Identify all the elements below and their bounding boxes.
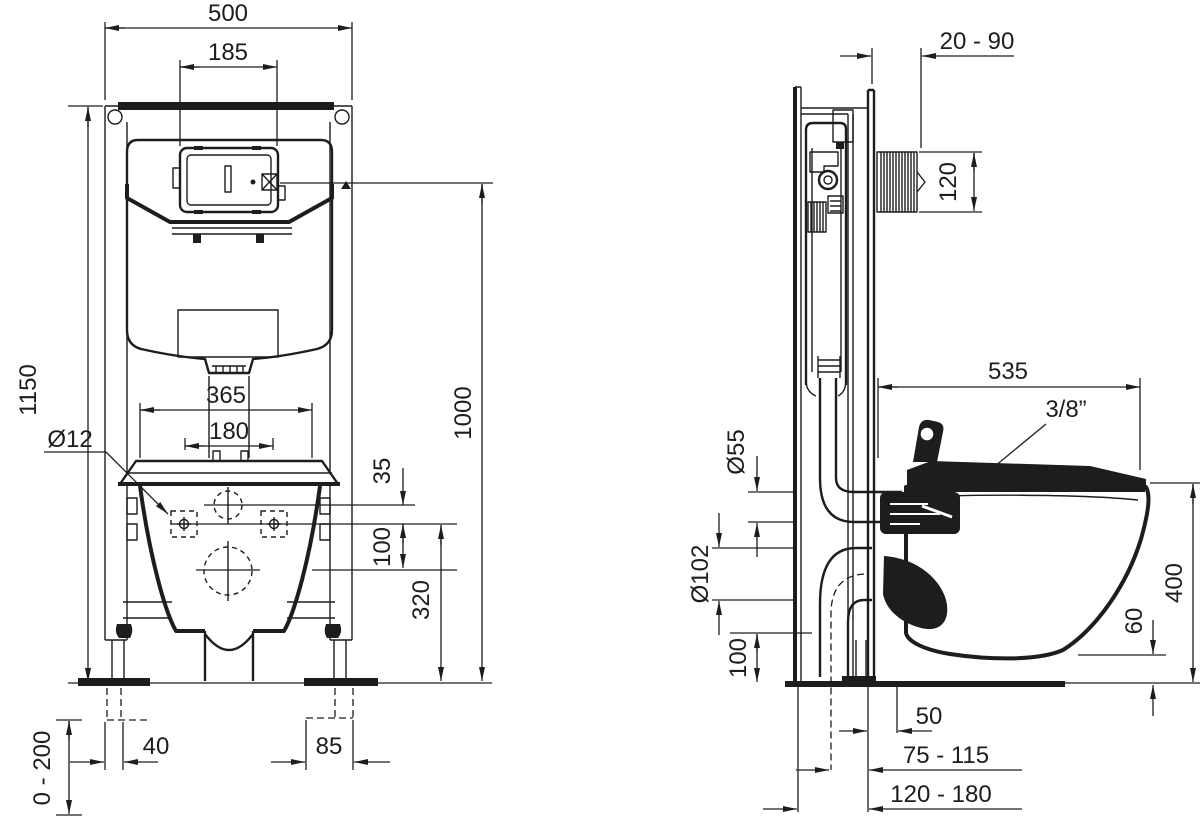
seat-hinge-tabs — [213, 451, 248, 461]
frame-foot-side — [856, 640, 866, 676]
dim-bolts-to-outlet: 100 — [369, 524, 403, 568]
front-view: 500 185 1150 365 180 Ø12 — [15, 0, 493, 815]
dim-text-bolt-spacing: 180 — [209, 418, 249, 445]
dim-text-plate-width: 185 — [208, 39, 248, 66]
dim-text-rim-height: 400 — [1161, 563, 1188, 603]
sleeve-hatch — [881, 152, 914, 212]
dim-text-frame-width: 500 — [208, 0, 248, 27]
flush-plate-inner — [187, 155, 271, 205]
dim-outlet-bottom-height: 100 — [725, 633, 812, 682]
dim-flush-plate-width: 185 — [180, 39, 277, 146]
side-view: 20 - 90 120 535 3/8” Ø55 Ø102 — [687, 28, 1200, 812]
tank-access-panel — [178, 310, 278, 357]
toilet-frame-dimension-drawing: 500 185 1150 365 180 Ø12 — [0, 0, 1200, 818]
dim-flush-pipe-diameter: Ø55 — [723, 429, 796, 557]
hidden-foot-lines — [107, 688, 150, 720]
fixing-lugs — [116, 624, 341, 638]
actuator-slot — [225, 166, 231, 192]
label-text-water-connection: 3/8” — [1045, 396, 1086, 423]
label-text-bolt-diameter: Ø12 — [47, 426, 92, 453]
dim-text-plate-height: 1000 — [450, 386, 477, 439]
dim-text-foot-left: 40 — [143, 733, 170, 760]
frame-front-rail — [848, 114, 853, 677]
dim-text-outlet-to-wall: 75 - 115 — [903, 742, 989, 769]
sleeve-notch — [917, 172, 925, 192]
dim-text-frame-height: 1150 — [15, 364, 42, 416]
frame-top-bar — [118, 102, 334, 110]
dim-frame-depth: 120 - 180 — [763, 781, 1022, 809]
below-floor-ext-lines — [798, 687, 897, 812]
valve-bracket — [810, 152, 838, 172]
dim-text-bolts-outlet: 100 — [369, 527, 396, 567]
foot-plates — [78, 678, 378, 686]
dim-text-flush-dia: Ø55 — [723, 429, 750, 474]
cistern-tank — [127, 140, 332, 373]
frame-hole-right — [335, 110, 349, 124]
dim-text-bowl-width: 365 — [206, 382, 246, 409]
dim-text-plate-recess: 120 — [935, 162, 962, 202]
dim-foot-adjustment: 0 - 200 — [29, 720, 82, 815]
support-bracket — [127, 184, 332, 222]
dim-outlet-offset: 50 — [839, 703, 942, 731]
dim-outlet-diameter: Ø102 — [687, 513, 796, 635]
filling-valve-symbol — [262, 174, 277, 190]
ext-lines — [712, 548, 796, 600]
hidden-foot-lines — [306, 688, 353, 718]
dim-frame-height: 1150 — [15, 106, 103, 682]
ext-lines — [105, 722, 123, 770]
dim-wall-distance: 20 - 90 — [840, 28, 1014, 148]
inlet-valve-core — [824, 176, 832, 184]
hinge-pin — [920, 427, 934, 441]
dim-text-wall-distance: 20 - 90 — [940, 28, 1015, 55]
fitting-hatch — [811, 202, 823, 232]
cistern-coupling-teeth — [212, 366, 246, 372]
flush-plate-ticks — [194, 146, 261, 214]
flush-plate-frame — [180, 148, 278, 212]
dim-text-bowl-projection: 535 — [988, 358, 1028, 385]
outlet-pipe-side — [820, 548, 872, 677]
dim-text-foot-right: 85 — [316, 733, 343, 760]
bowl-drain-front — [205, 631, 253, 681]
dim-text-foot-adjust: 0 - 200 — [29, 731, 56, 806]
frame-top-bracket — [801, 108, 868, 142]
dim-bolt-spacing: 180 — [185, 418, 273, 450]
dim-text-outlet-offset: 50 — [916, 703, 943, 730]
dim-outlet-to-wall: 75 - 115 — [796, 742, 1022, 770]
datum-triangle — [341, 181, 351, 189]
dim-text-frame-depth: 120 - 180 — [890, 781, 991, 808]
bracket-block — [836, 142, 844, 149]
dim-foot-left: 40 — [70, 688, 169, 770]
frame-hole-left — [108, 110, 122, 124]
dim-plate-recess: 120 — [919, 152, 982, 212]
dim-text-bowl-underside: 60 — [1121, 608, 1148, 635]
bracket-tabs — [193, 234, 264, 243]
dim-flush-to-bolts: 35 — [369, 458, 403, 505]
dim-text-outlet-bottom: 100 — [725, 638, 752, 678]
technical-drawing-page: 500 185 1150 365 180 Ø12 — [0, 0, 1200, 818]
dim-text-outlet-dia: Ø102 — [687, 545, 714, 604]
dim-foot-right: 85 — [271, 688, 390, 770]
valve-dot — [251, 180, 256, 185]
dim-text-outlet-height: 320 — [408, 580, 435, 620]
finished-wall-lines — [868, 90, 874, 683]
dim-rim-height: 400 — [1150, 483, 1200, 682]
ext-lines — [872, 48, 921, 148]
inlet-valve-port — [819, 171, 837, 189]
ext-lines — [748, 492, 796, 522]
seat-side — [907, 461, 1146, 486]
dim-text-flush-offset: 35 — [369, 458, 396, 485]
dim-outlet-height: 320 — [408, 525, 441, 681]
bowl-front-outline — [140, 486, 320, 631]
bracket-plate — [172, 228, 292, 234]
